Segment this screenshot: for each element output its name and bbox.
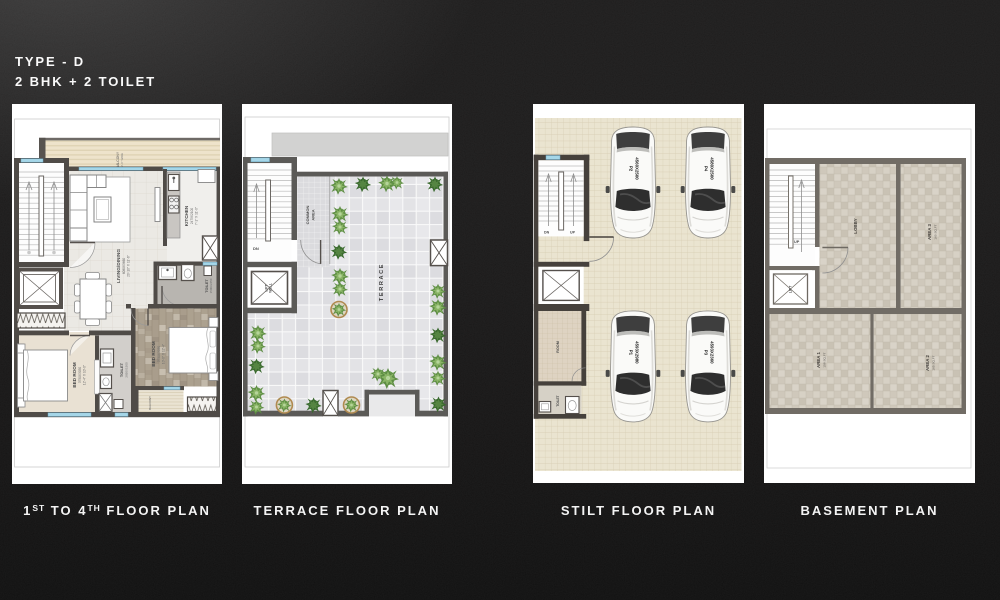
- svg-text:BALCONY: BALCONY: [148, 396, 152, 410]
- svg-text:TOILET: TOILET: [119, 362, 124, 377]
- svg-text:WELL: WELL: [269, 283, 273, 293]
- svg-text:UP: UP: [570, 231, 576, 235]
- svg-text:158 SQ.FT: 158 SQ.FT: [823, 352, 827, 367]
- svg-text:3750X3050: 3750X3050: [78, 367, 82, 384]
- svg-text:6080X3660: 6080X3660: [122, 258, 126, 275]
- svg-text:P4: P4: [704, 166, 709, 172]
- svg-text:KITCHEN: KITCHEN: [184, 205, 189, 226]
- svg-text:AREA: AREA: [311, 209, 316, 220]
- svg-text:ROOM: ROOM: [556, 341, 560, 353]
- svg-text:LOBBY: LOBBY: [853, 218, 858, 233]
- svg-text:10'-0" X 12'-4": 10'-0" X 12'-4": [162, 344, 166, 364]
- svg-text:P3: P3: [704, 350, 709, 356]
- svg-text:DN: DN: [544, 231, 550, 235]
- svg-text:TOILET: TOILET: [556, 395, 560, 406]
- svg-text:20'-10" X 11'-6": 20'-10" X 11'-6": [127, 255, 131, 277]
- svg-text:4580X2500: 4580X2500: [710, 157, 715, 180]
- svg-text:1500X2450: 1500X2450: [209, 278, 213, 293]
- svg-text:BED ROOM: BED ROOM: [72, 362, 77, 387]
- svg-text:LIFT: LIFT: [789, 285, 793, 293]
- svg-text:4560X2500: 4560X2500: [635, 157, 640, 180]
- svg-text:AREA 3: AREA 3: [927, 223, 932, 239]
- svg-text:P2: P2: [629, 166, 634, 172]
- svg-text:160 SQ.FT: 160 SQ.FT: [934, 224, 938, 239]
- svg-text:AREA 1: AREA 1: [816, 351, 821, 367]
- svg-text:7'-1" X 11'-0": 7'-1" X 11'-0": [195, 207, 199, 225]
- svg-text:TERRACE: TERRACE: [379, 263, 385, 301]
- svg-text:2650X1500: 2650X1500: [125, 362, 129, 378]
- svg-text:DN: DN: [253, 246, 259, 251]
- svg-text:165 SQ.FT: 165 SQ.FT: [932, 355, 936, 370]
- svg-text:9'-1" WIDE: 9'-1" WIDE: [120, 153, 124, 167]
- svg-text:2475X2100: 2475X2100: [190, 208, 194, 225]
- svg-text:12'-4" X 10'-0": 12'-4" X 10'-0": [83, 365, 87, 385]
- svg-text:4593X2360: 4593X2360: [710, 341, 715, 364]
- svg-text:3750X3050: 3750X3050: [157, 346, 161, 363]
- svg-text:AREA 2: AREA 2: [925, 354, 930, 370]
- svg-text:UP: UP: [794, 240, 800, 244]
- svg-text:P1: P1: [629, 350, 634, 356]
- svg-text:COMMON: COMMON: [305, 206, 310, 225]
- svg-text:4593X2980: 4593X2980: [635, 341, 640, 364]
- svg-text:BED ROOM: BED ROOM: [151, 341, 156, 366]
